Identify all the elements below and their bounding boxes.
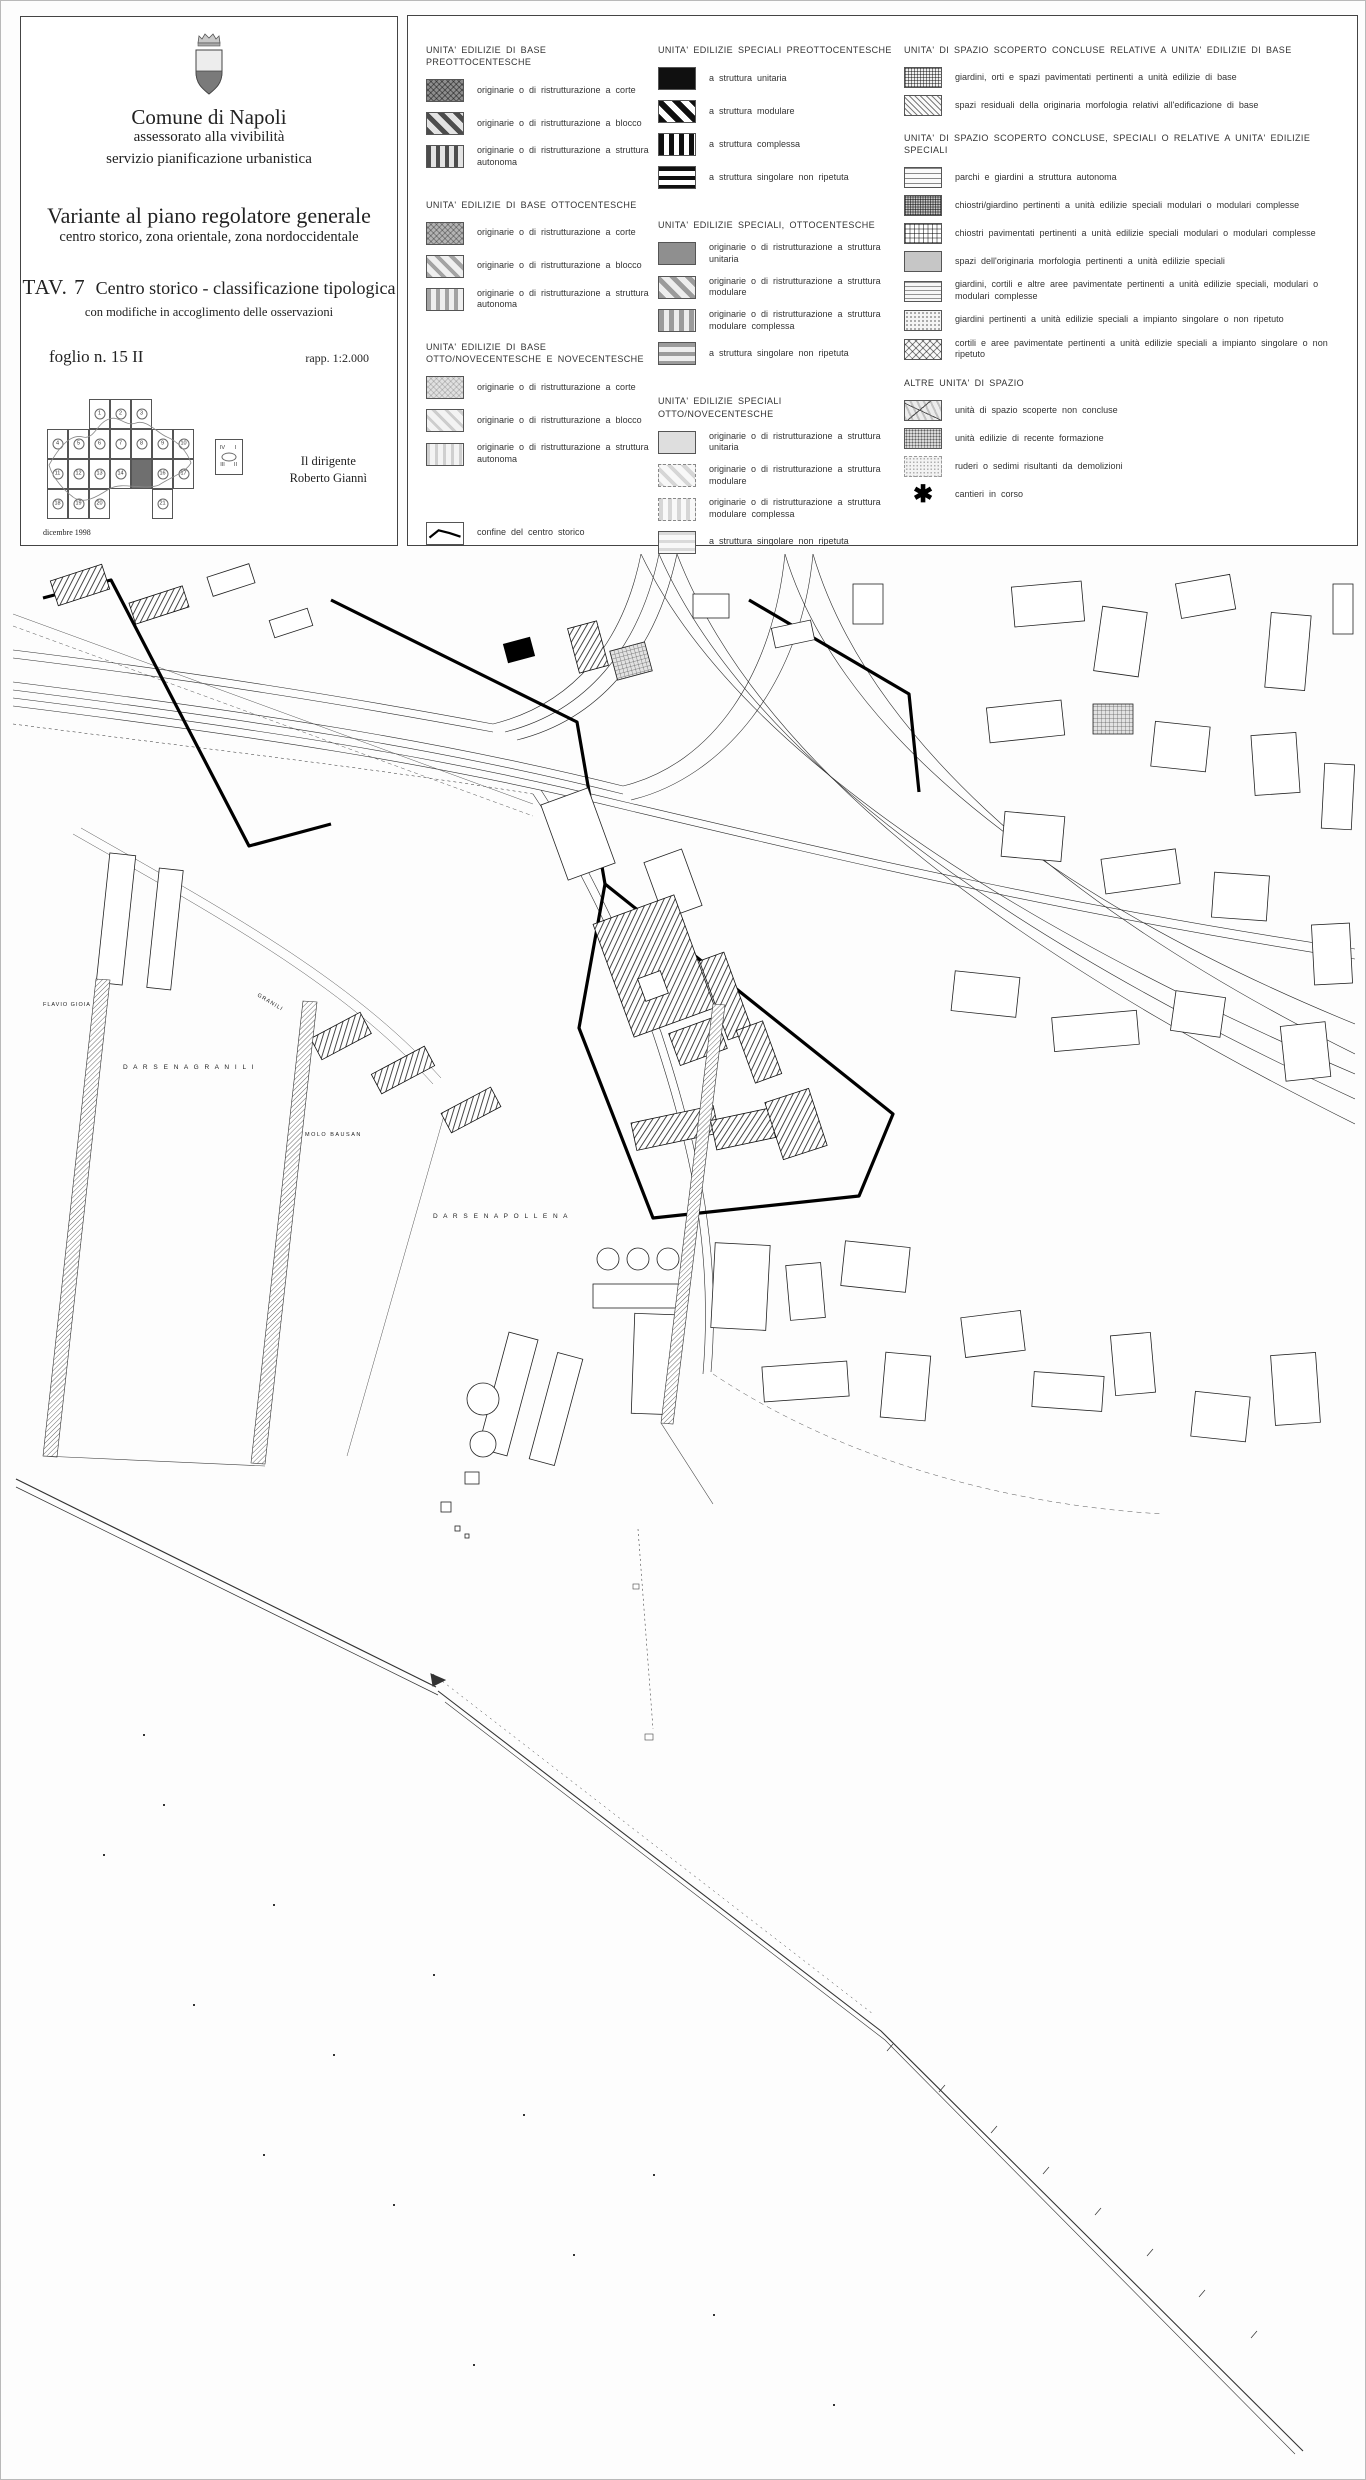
legend-swatch (904, 310, 942, 331)
sheet-title: Centro storico - classificazione tipolog… (96, 278, 396, 298)
index-map-cell: 7 (110, 429, 131, 459)
index-map-cell: 16 (152, 459, 173, 489)
map-scale: rapp. 1:2.000 (305, 351, 369, 366)
legend-swatch (904, 67, 942, 88)
index-map-cell-number: 13 (94, 469, 105, 480)
index-map-cell-number: 10 (178, 439, 189, 450)
molo-bausan-label: MOLO BAUSAN (305, 1132, 362, 1138)
legend-item: originarie o di ristrutturazione a strut… (658, 497, 898, 520)
legend-swatch (426, 145, 464, 168)
index-map-cell: 5 (68, 429, 89, 459)
legend-item-label: originarie o di ristrutturazione a corte (477, 227, 636, 239)
index-map-cell-number: 11 (52, 469, 63, 480)
index-map-cell: 1 (89, 399, 110, 429)
misc-marks (103, 1529, 835, 2406)
plan-title: Variante al piano regolatore generale (21, 203, 397, 229)
legend-item: originarie o di ristrutturazione a blocc… (426, 255, 656, 278)
legend-item-label: giardini, cortili e altre aree pavimenta… (955, 279, 1349, 302)
legend-item: chiostri pavimentati pertinenti a unità … (904, 223, 1349, 244)
legend-item: originarie o di ristrutturazione a strut… (658, 464, 898, 487)
legend-item-label: originarie o di ristrutturazione a corte (477, 382, 636, 394)
legend-swatch (426, 255, 464, 278)
index-map-cell: 3 (131, 399, 152, 429)
legend-item: originarie o di ristrutturazione a strut… (426, 442, 656, 465)
darsena-pollena-label: D A R S E N A P O L L E N A (433, 1213, 570, 1220)
legend-swatch (904, 281, 942, 302)
legend-section-header: UNITA' EDILIZIE SPECIALI OTTO/NOVECENTES… (658, 395, 898, 419)
index-map-cell-number: 16 (157, 469, 168, 480)
index-map-cell-number: 4 (52, 439, 63, 450)
index-map-cell: 20 (89, 489, 110, 519)
index-map-cell-number: 8 (136, 439, 147, 450)
legend-item: a struttura unitaria (658, 67, 898, 90)
legend-swatch (658, 242, 696, 265)
legend-section: UNITA' EDILIZIE SPECIALI, OTTOCENTESCHEo… (658, 219, 898, 365)
building-solid-black (503, 637, 535, 664)
legend-column-special-units: UNITA' EDILIZIE SPECIALI PREOTTOCENTESCH… (658, 16, 898, 545)
quadrant-center-dot (222, 453, 237, 462)
legend-item-label: originarie o di ristrutturazione a strut… (709, 309, 898, 332)
index-map-cell: 10 (173, 429, 194, 459)
legend-section: UNITA' DI SPAZIO SCOPERTO CONCLUSE, SPEC… (904, 132, 1349, 361)
legend-item-label: cantieri in corso (955, 489, 1023, 501)
office-name: servizio pianificazione urbanistica (21, 151, 397, 168)
index-map-cell: 13 (89, 459, 110, 489)
signature-role: Il dirigente (290, 453, 367, 470)
sheet-title-row: TAV. 7Centro storico - classificazione t… (21, 275, 397, 300)
sheet-code: TAV. 7 (23, 275, 86, 299)
legend-swatch (426, 376, 464, 399)
index-map-cell (131, 459, 152, 489)
legend-item-label: a struttura singolare non ripetuta (709, 536, 849, 548)
legend-swatch (658, 309, 696, 332)
legend-item: a struttura singolare non ripetuta (658, 166, 898, 189)
index-map-cell-number: 1 (94, 409, 105, 420)
index-map-cell: 14 (110, 459, 131, 489)
legend-item-label: a struttura modulare (709, 106, 795, 118)
legend-item-label: giardini pertinenti a unità edilizie spe… (955, 314, 1284, 326)
index-map: 1234567891011121314161718192021 IV I III… (47, 399, 247, 527)
index-map-cell: 6 (89, 429, 110, 459)
boundary-line-swatch (426, 522, 464, 545)
index-map-cell-number: 3 (136, 409, 147, 420)
index-map-cell: 4 (47, 429, 68, 459)
index-map-cell: 12 (68, 459, 89, 489)
legend-item: originarie o di ristrutturazione a strut… (426, 288, 656, 311)
darsena-granili-label: D A R S E N A G R A N I L I (123, 1064, 256, 1071)
legend-item-label: unità edilizie di recente formazione (955, 433, 1104, 445)
index-map-cell: 18 (47, 489, 68, 519)
legend-swatch (426, 222, 464, 245)
legend-swatch (904, 339, 942, 360)
legend-item: a struttura complessa (658, 133, 898, 156)
signature-name: Roberto Giannì (290, 470, 367, 487)
legend-swatch (426, 79, 464, 102)
legend-section: UNITA' EDILIZIE DI BASE OTTOCENTESCHEori… (426, 199, 656, 312)
legend-item: spazi dell'originaria morfologia pertine… (904, 251, 1349, 272)
legend-item: originarie o di ristrutturazione a strut… (658, 431, 898, 454)
legend-section-header: UNITA' DI SPAZIO SCOPERTO CONCLUSE, SPEC… (904, 132, 1349, 156)
harbour-piers (43, 979, 725, 1464)
legend-swatch (426, 112, 464, 135)
legend-item: confine del centro storico (426, 522, 656, 545)
index-map-cell-number: 19 (73, 499, 84, 510)
legend-item-label: originarie o di ristrutturazione a strut… (477, 442, 656, 465)
legend-section: UNITA' EDILIZIE DI BASE PREOTTOCENTESCHE… (426, 44, 656, 169)
index-map-cell-number: 7 (115, 439, 126, 450)
flavio-gioia-label: FLAVIO GIOIA (43, 1002, 91, 1008)
index-map-cell-number: 12 (73, 469, 84, 480)
legend-item-label: confine del centro storico (477, 527, 585, 539)
legend-item: originarie o di ristrutturazione a blocc… (426, 409, 656, 432)
legend-swatch (658, 342, 696, 365)
legend-item: originarie o di ristrutturazione a corte (426, 222, 656, 245)
legend-swatch (904, 195, 942, 216)
legend-item-label: originarie o di ristrutturazione a blocc… (477, 415, 642, 427)
legend-swatch (658, 498, 696, 521)
legend-item-label: giardini, orti e spazi pavimentati perti… (955, 72, 1237, 84)
index-map-cell: 9 (152, 429, 173, 459)
legend-item: a struttura singolare non ripetuta (658, 531, 898, 554)
index-map-cell-number: 6 (94, 439, 105, 450)
legend-item-label: originarie o di ristrutturazione a strut… (709, 276, 898, 299)
municipality-name: Comune di Napoli (21, 105, 397, 130)
legend-item: ✱cantieri in corso (904, 484, 1349, 505)
legend-item: originarie o di ristrutturazione a strut… (658, 242, 898, 265)
legend-item: cortili e aree pavimentate pertinenti a … (904, 338, 1349, 361)
legend-item: a struttura modulare (658, 100, 898, 123)
legend-item: originarie o di ristrutturazione a corte (426, 79, 656, 102)
sheet-note: con modifiche in accoglimento delle osse… (21, 305, 397, 320)
legend-item-label: spazi dell'originaria morfologia pertine… (955, 256, 1225, 268)
legend-item-label: originarie o di ristrutturazione a blocc… (477, 118, 642, 130)
asterisk-icon: ✱ (904, 484, 942, 505)
legend-item: ruderi o sedimi risultanti da demolizion… (904, 456, 1349, 477)
legend-section-header: UNITA' EDILIZIE DI BASE OTTOCENTESCHE (426, 199, 656, 211)
legend-item-label: originarie o di ristrutturazione a strut… (709, 431, 898, 454)
index-map-cell-number: 20 (94, 499, 105, 510)
legend-swatch (904, 456, 942, 477)
folio-number: foglio n. 15 II (49, 347, 143, 367)
legend-item-label: originarie o di ristrutturazione a strut… (709, 464, 898, 487)
legend-item: unità di spazio scoperte non concluse (904, 400, 1349, 421)
folio-row: foglio n. 15 II rapp. 1:2.000 (49, 347, 369, 367)
legend-item-label: chiostri/giardino pertinenti a unità edi… (955, 200, 1299, 212)
legend-item-label: a struttura unitaria (709, 73, 787, 85)
index-map-cell: 19 (68, 489, 89, 519)
index-map-cell-number: 9 (157, 439, 168, 450)
index-map-cell: 17 (173, 459, 194, 489)
legend-item-label: a struttura singolare non ripetuta (709, 172, 849, 184)
legend-item: originarie o di ristrutturazione a strut… (426, 145, 656, 168)
legend-swatch (904, 167, 942, 188)
breakwater (16, 1479, 1303, 2454)
legend-item-label: chiostri pavimentati pertinenti a unità … (955, 228, 1316, 240)
legend-column-base-units: UNITA' EDILIZIE DI BASE PREOTTOCENTESCHE… (426, 16, 656, 545)
legend-swatch (658, 100, 696, 123)
title-block: Comune di Napoli assessorato alla vivibi… (20, 16, 398, 546)
sheet-date: dicembre 1998 (43, 528, 91, 537)
quadrant-index: IV I III II (215, 439, 243, 475)
legend-item: originarie o di ristrutturazione a strut… (658, 276, 898, 299)
legend-section: UNITA' EDILIZIE DI BASE OTTO/NOVECENTESC… (426, 341, 656, 545)
legend-swatch (658, 531, 696, 554)
signature-block: Il dirigente Roberto Giannì (290, 453, 367, 487)
index-map-cell-number: 14 (115, 469, 126, 480)
index-map-cell-number: 2 (115, 409, 126, 420)
legend-item-label: a struttura singolare non ripetuta (709, 348, 849, 360)
legend-section: ALTRE UNITA' DI SPAZIOunità di spazio sc… (904, 377, 1349, 505)
legend-panel: UNITA' EDILIZIE DI BASE PREOTTOCENTESCHE… (407, 15, 1358, 546)
legend-section-header: UNITA' EDILIZIE DI BASE PREOTTOCENTESCHE (426, 44, 656, 68)
legend-item: unità edilizie di recente formazione (904, 428, 1349, 449)
naples-coat-of-arms-icon (189, 31, 229, 108)
legend-swatch (426, 443, 464, 466)
granili-street-label: GRANILI (256, 993, 284, 1013)
legend-swatch (904, 223, 942, 244)
legend-section: UNITA' DI SPAZIO SCOPERTO CONCLUSE RELAT… (904, 44, 1349, 116)
legend-column-open-space-units: UNITA' DI SPAZIO SCOPERTO CONCLUSE RELAT… (904, 16, 1349, 545)
legend-item: chiostri/giardino pertinenti a unità edi… (904, 195, 1349, 216)
legend-item-label: a struttura complessa (709, 139, 800, 151)
legend-swatch (904, 95, 942, 116)
legend-item-label: cortili e aree pavimentate pertinenti a … (955, 338, 1349, 361)
legend-swatch (658, 431, 696, 454)
map-canvas: D A R S E N A G R A N I L I MOLO BAUSAN … (13, 554, 1355, 2471)
legend-section: UNITA' EDILIZIE SPECIALI OTTO/NOVECENTES… (658, 395, 898, 553)
legend-item-label: originarie o di ristrutturazione a strut… (709, 242, 898, 265)
legend-item-label: unità di spazio scoperte non concluse (955, 405, 1118, 417)
legend-item: giardini, cortili e altre aree pavimenta… (904, 279, 1349, 302)
legend-swatch (658, 464, 696, 487)
legend-section: UNITA' EDILIZIE SPECIALI PREOTTOCENTESCH… (658, 44, 898, 189)
legend-item: a struttura singolare non ripetuta (658, 342, 898, 365)
index-map-grid: 1234567891011121314161718192021 (47, 399, 194, 519)
legend-item: giardini pertinenti a unità edilizie spe… (904, 310, 1349, 331)
legend-section-header: ALTRE UNITA' DI SPAZIO (904, 377, 1349, 389)
legend-item: spazi residuali della originaria morfolo… (904, 95, 1349, 116)
legend-item: giardini, orti e spazi pavimentati perti… (904, 67, 1349, 88)
legend-item-label: originarie o di ristrutturazione a strut… (477, 288, 656, 311)
legend-item-label: originarie o di ristrutturazione a blocc… (477, 260, 642, 272)
legend-item-label: originarie o di ristrutturazione a strut… (477, 145, 656, 168)
legend-swatch (904, 400, 942, 421)
legend-item-label: parchi e giardini a struttura autonoma (955, 172, 1117, 184)
legend-swatch (658, 67, 696, 90)
legend-swatch (904, 428, 942, 449)
index-map-cell-number: 18 (52, 499, 63, 510)
legend-swatch (658, 166, 696, 189)
index-map-cell: 21 (152, 489, 173, 519)
index-map-cell-number: 5 (73, 439, 84, 450)
legend-item: originarie o di ristrutturazione a corte (426, 376, 656, 399)
legend-item-label: originarie o di ristrutturazione a corte (477, 85, 636, 97)
legend-section-header: UNITA' DI SPAZIO SCOPERTO CONCLUSE RELAT… (904, 44, 1349, 56)
legend-section-header: UNITA' EDILIZIE SPECIALI PREOTTOCENTESCH… (658, 44, 898, 56)
legend-item: originarie o di ristrutturazione a blocc… (426, 112, 656, 135)
plan-subtitle: centro storico, zona orientale, zona nor… (21, 229, 397, 246)
legend-item: originarie o di ristrutturazione a strut… (658, 309, 898, 332)
legend-item-label: ruderi o sedimi risultanti da demolizion… (955, 461, 1123, 473)
department-name: assessorato alla vivibilità (21, 129, 397, 146)
legend-swatch (658, 276, 696, 299)
legend-section-header: UNITA' EDILIZIE SPECIALI, OTTOCENTESCHE (658, 219, 898, 231)
legend-swatch (426, 288, 464, 311)
legend-item: parchi e giardini a struttura autonoma (904, 167, 1349, 188)
legend-swatch (426, 409, 464, 432)
legend-item-label: originarie o di ristrutturazione a strut… (709, 497, 898, 520)
legend-item-label: spazi residuali della originaria morfolo… (955, 100, 1258, 112)
index-map-cell: 2 (110, 399, 131, 429)
quay-lines (43, 1423, 713, 1504)
index-map-cell-number: 21 (157, 499, 168, 510)
legend-section-header: UNITA' EDILIZIE DI BASE OTTO/NOVECENTESC… (426, 341, 656, 365)
index-map-cell: 8 (131, 429, 152, 459)
index-map-cell-number: 17 (178, 469, 189, 480)
legend-swatch (904, 251, 942, 272)
legend-swatch (658, 133, 696, 156)
index-map-cell: 11 (47, 459, 68, 489)
map-sheet: Comune di Napoli assessorato alla vivibi… (0, 0, 1366, 2480)
